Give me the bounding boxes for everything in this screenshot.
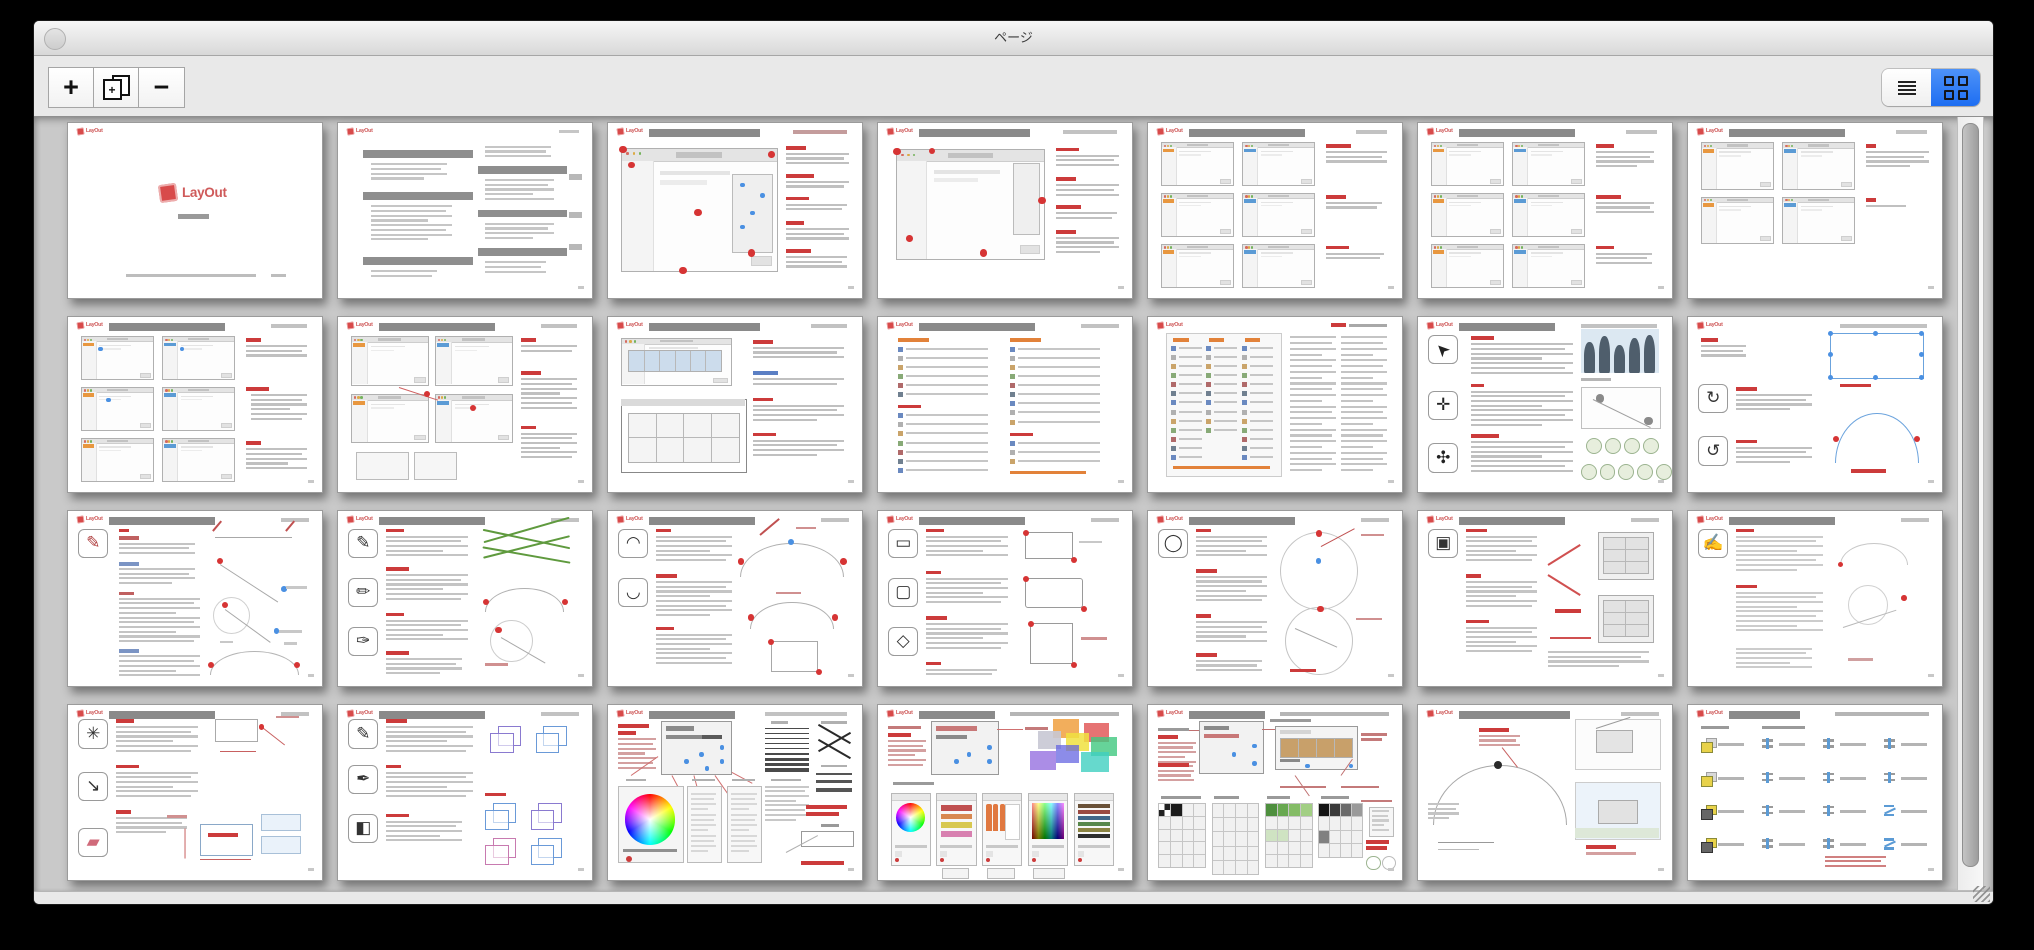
icon-label bbox=[1018, 451, 1099, 453]
thumb-bar bbox=[1658, 868, 1664, 871]
thumb-bar bbox=[271, 324, 307, 328]
thumb-screenshot bbox=[1431, 244, 1504, 288]
duplicate-page-button[interactable]: + bbox=[94, 68, 139, 107]
pattern-cell bbox=[1248, 832, 1259, 845]
close-button[interactable] bbox=[44, 28, 66, 50]
thumb-textline bbox=[1466, 581, 1537, 583]
icon-cell bbox=[1171, 373, 1176, 378]
grid-view-button[interactable] bbox=[1931, 69, 1980, 106]
tool-icon: ◠ bbox=[618, 529, 648, 559]
pattern-cell bbox=[1278, 830, 1289, 842]
page-thumbnail-7[interactable]: LayOut bbox=[1687, 122, 1943, 299]
thumb-textline bbox=[731, 819, 754, 821]
page-thumbnail-16[interactable]: LayOut✎✏✑ bbox=[337, 510, 593, 687]
thumb-bar bbox=[109, 517, 216, 526]
shot-highlight bbox=[1784, 149, 1795, 153]
thumb-bar bbox=[1658, 286, 1664, 289]
thumb-textline bbox=[1341, 388, 1383, 390]
thumb-textline bbox=[753, 440, 844, 442]
thumb-heading bbox=[1596, 246, 1614, 250]
pattern-cell bbox=[1183, 804, 1194, 816]
icon-cell bbox=[1242, 373, 1247, 378]
thumb-textlines bbox=[1428, 803, 1458, 822]
icon-label bbox=[1179, 365, 1202, 367]
thumb-textline bbox=[1158, 779, 1194, 781]
people-image bbox=[1581, 329, 1660, 373]
thumb-textline bbox=[1341, 463, 1387, 465]
thumb-textline bbox=[386, 545, 467, 547]
thumb-textline bbox=[116, 790, 197, 792]
shot-text bbox=[1531, 202, 1563, 203]
thumb-textlines bbox=[888, 740, 926, 768]
thumb-textline bbox=[1196, 640, 1267, 642]
thumb-textline bbox=[386, 731, 465, 733]
thumb-heading bbox=[786, 197, 809, 201]
tool-icon-glyph: ◯ bbox=[1164, 535, 1183, 552]
layout-logo-text: LayOut bbox=[1436, 129, 1453, 134]
pattern-cell bbox=[1278, 804, 1289, 816]
title-bar[interactable]: ページ bbox=[34, 21, 1993, 56]
align-axis bbox=[1766, 772, 1769, 783]
thumb-textline bbox=[371, 205, 452, 207]
thumb-dot bbox=[768, 639, 774, 645]
layout-logo: LayOut bbox=[1697, 710, 1723, 717]
list-icon bbox=[1898, 81, 1916, 95]
thumb-textline bbox=[731, 845, 756, 847]
shot-button bbox=[1760, 182, 1771, 187]
thumb-textlines bbox=[521, 378, 577, 411]
arc bbox=[1835, 413, 1918, 463]
thumb-bar bbox=[126, 274, 256, 277]
shot-highlight bbox=[1433, 149, 1444, 152]
thumb-textline bbox=[1056, 237, 1120, 239]
pattern-grid bbox=[1318, 803, 1363, 858]
thumb-bar bbox=[1438, 842, 1494, 844]
page-thumbnail-27[interactable]: LayOut bbox=[1417, 704, 1673, 881]
pattern-cell bbox=[1224, 804, 1235, 817]
thumb-bar bbox=[541, 712, 579, 716]
thumb-bar bbox=[816, 780, 852, 783]
thumb-textlines bbox=[1196, 660, 1262, 674]
entry-label bbox=[1779, 810, 1805, 813]
thumb-textline bbox=[1196, 631, 1267, 633]
thumb-textline bbox=[386, 579, 461, 581]
grid-cell bbox=[1626, 601, 1647, 612]
thumb-textline bbox=[691, 835, 716, 837]
tool-icon-glyph: ✎ bbox=[356, 726, 370, 743]
thumb-textline bbox=[386, 536, 467, 538]
thumb-textline bbox=[251, 399, 302, 401]
thumb-textline bbox=[1341, 382, 1387, 384]
shot-button bbox=[1571, 229, 1582, 234]
thumb-heading bbox=[753, 340, 773, 344]
thumb-dot bbox=[626, 856, 632, 862]
thumb-textline bbox=[116, 781, 197, 783]
delete-page-button[interactable]: − bbox=[139, 68, 184, 107]
page-thumbnail-15[interactable]: LayOut✎ bbox=[67, 510, 323, 687]
page-thumbnail-5[interactable]: LayOut bbox=[1147, 122, 1403, 299]
pattern-cell bbox=[1224, 818, 1235, 831]
shot-text bbox=[1179, 256, 1200, 257]
layout-logo-icon bbox=[616, 128, 624, 136]
thumb-textline bbox=[731, 808, 749, 810]
thumb-textline bbox=[521, 433, 577, 435]
thumb-dot bbox=[740, 225, 745, 230]
cube-front bbox=[531, 845, 554, 865]
page-thumbnail-24[interactable]: LayOut bbox=[607, 704, 863, 881]
thumb-textline bbox=[731, 803, 756, 805]
thumb-textline bbox=[1158, 746, 1193, 748]
cube-icon-front bbox=[1701, 776, 1713, 787]
thumb-textline bbox=[1596, 206, 1650, 208]
thumb-heading bbox=[801, 861, 844, 865]
grid-cell bbox=[629, 414, 656, 437]
page-thumbnail-22[interactable]: LayOut✳↘▰ bbox=[67, 704, 323, 881]
thumb-textline bbox=[1736, 461, 1789, 463]
icon-rows bbox=[1010, 347, 1101, 429]
thumb-box bbox=[356, 452, 409, 480]
thumb-dot bbox=[980, 249, 988, 257]
icon-cell bbox=[1171, 428, 1176, 433]
thumb-textline bbox=[1466, 650, 1531, 652]
thumb-textline bbox=[386, 550, 443, 552]
icon-label-entry bbox=[1701, 805, 1751, 820]
shot-title bbox=[462, 396, 485, 398]
thumb-textline bbox=[119, 568, 195, 570]
thumb-textlines bbox=[656, 634, 732, 667]
thumb-textline bbox=[116, 795, 191, 797]
icon-cell bbox=[1171, 400, 1176, 405]
layout-logo-icon bbox=[616, 710, 624, 718]
page-thumbnail-6[interactable]: LayOut bbox=[1417, 122, 1673, 299]
shot-button bbox=[221, 474, 232, 479]
thumb-dot bbox=[699, 752, 704, 757]
icon-rows bbox=[1242, 346, 1275, 464]
tool-icon-glyph: ▭ bbox=[895, 535, 911, 552]
thumb-bar bbox=[1118, 286, 1124, 289]
pattern-cell bbox=[1289, 830, 1300, 842]
thumb-line bbox=[286, 521, 296, 532]
shot-highlight bbox=[1163, 250, 1174, 253]
page-thumbnail-21[interactable]: LayOut✍ bbox=[1687, 510, 1943, 687]
pattern-cell bbox=[1352, 844, 1362, 856]
shot-text bbox=[1449, 151, 1481, 152]
page-thumbnail-3[interactable]: LayOut bbox=[607, 122, 863, 299]
page-thumbnail-2[interactable]: LayOut bbox=[337, 122, 593, 299]
thumb-heading bbox=[1866, 144, 1876, 148]
thumb-textline bbox=[1736, 648, 1812, 650]
thumb-heading bbox=[1196, 614, 1211, 618]
add-page-button[interactable]: + bbox=[49, 68, 94, 107]
thumb-textline bbox=[1290, 446, 1322, 448]
thumb-bar bbox=[1189, 711, 1265, 720]
thumb-textline bbox=[1196, 580, 1261, 582]
pattern-cell bbox=[1266, 842, 1277, 854]
shot-sidebar bbox=[897, 161, 927, 259]
page-thumbnail-1[interactable]: LayOutLayOut bbox=[67, 122, 323, 299]
thumb-textline bbox=[691, 845, 716, 847]
thumb-textline bbox=[1736, 625, 1796, 627]
thumb-dot bbox=[628, 162, 635, 169]
page-thumbnail-9[interactable]: LayOut bbox=[337, 316, 593, 493]
thumb-bar bbox=[649, 129, 761, 138]
thumb-textline bbox=[1466, 605, 1531, 607]
resize-grip[interactable] bbox=[1973, 886, 1990, 902]
thumb-textline bbox=[1466, 586, 1531, 588]
page-thumbnail-18[interactable]: LayOut▭▢◇ bbox=[877, 510, 1133, 687]
thumb-line bbox=[184, 828, 185, 858]
tool-icon: ▭ bbox=[888, 529, 918, 559]
pattern-cell bbox=[1266, 855, 1277, 867]
page-thumbnail-14[interactable]: LayOut↻↺ bbox=[1687, 316, 1943, 493]
thumb-heading bbox=[386, 765, 401, 769]
thumb-textline bbox=[386, 790, 472, 792]
thumb-textline bbox=[1471, 372, 1573, 374]
page-thumbnail-20[interactable]: LayOut▣ bbox=[1417, 510, 1673, 687]
thumb-textline bbox=[1736, 606, 1796, 608]
thumb-textline bbox=[753, 444, 837, 446]
thumb-textline bbox=[521, 402, 572, 404]
thumb-textline bbox=[246, 345, 307, 347]
thumb-bar bbox=[1701, 726, 1729, 729]
page-thumbnail-23[interactable]: LayOut✎✒◧ bbox=[337, 704, 593, 881]
thumb-dot bbox=[1252, 761, 1257, 766]
icon-cell bbox=[898, 392, 903, 397]
scrollbar-thumb[interactable] bbox=[1962, 123, 1979, 867]
pattern-cell bbox=[1266, 817, 1277, 829]
thumb-heading bbox=[386, 651, 409, 655]
thumb-bar bbox=[1361, 534, 1384, 537]
layout-logo-icon bbox=[1156, 710, 1164, 718]
thumb-bar bbox=[569, 174, 582, 180]
layout-logo: LayOut bbox=[1157, 322, 1183, 329]
icon-cell bbox=[1206, 419, 1211, 424]
page-thumbnail-8[interactable]: LayOut bbox=[67, 316, 323, 493]
page-thumbnail-19[interactable]: LayOut◯ bbox=[1147, 510, 1403, 687]
icon-label bbox=[906, 432, 987, 434]
thumb-dot bbox=[906, 235, 913, 242]
thumb-textlines bbox=[1466, 627, 1537, 655]
thumb-textline bbox=[116, 750, 191, 752]
tool-icon: ◯ bbox=[1158, 529, 1188, 559]
thumb-textline bbox=[656, 554, 732, 556]
layout-logo: LayOut bbox=[347, 516, 373, 523]
thumb-textline bbox=[1736, 403, 1812, 405]
icon-label bbox=[1018, 460, 1099, 462]
icon-cell bbox=[1206, 400, 1211, 405]
icon-label bbox=[1179, 411, 1202, 413]
thumb-bar bbox=[776, 592, 801, 595]
page-thumbnail-11[interactable]: LayOut bbox=[877, 316, 1133, 493]
pattern-cell bbox=[1194, 855, 1205, 867]
color-picker-panel bbox=[891, 793, 931, 867]
layout-logo-icon bbox=[1696, 516, 1704, 524]
arc bbox=[740, 543, 844, 577]
thumb-textline bbox=[521, 383, 572, 385]
shot-title bbox=[378, 338, 401, 340]
thumb-textlines bbox=[1326, 151, 1387, 165]
thumb-textline bbox=[1196, 536, 1267, 538]
pattern-cell bbox=[1159, 804, 1170, 816]
thumb-heading bbox=[1290, 669, 1315, 673]
thumb-textlines bbox=[1596, 151, 1654, 170]
circle bbox=[1600, 464, 1616, 480]
thumb-textline bbox=[1471, 460, 1573, 462]
page-thumbnail-17[interactable]: LayOut◠◡ bbox=[607, 510, 863, 687]
thumb-bar bbox=[1118, 480, 1124, 483]
thumb-textline bbox=[753, 351, 837, 353]
thumb-textline bbox=[251, 403, 307, 405]
thumb-textline bbox=[1466, 536, 1537, 538]
thumb-heading bbox=[1366, 846, 1386, 850]
thumb-heading bbox=[1331, 323, 1346, 327]
thumb-screenshot bbox=[1161, 244, 1234, 288]
thumb-dot bbox=[1901, 595, 1907, 601]
thumb-heading bbox=[1056, 177, 1076, 181]
layout-logo-text: LayOut bbox=[1706, 517, 1723, 522]
thumb-textlines bbox=[1825, 856, 1886, 870]
thumb-textline bbox=[386, 663, 456, 665]
thumb-screenshot bbox=[1512, 142, 1585, 186]
thumb-screenshot bbox=[1512, 244, 1585, 288]
thumb-textlines bbox=[1866, 151, 1930, 170]
list-view-button[interactable] bbox=[1882, 69, 1931, 106]
thumb-textline bbox=[1196, 669, 1262, 671]
thumb-textline bbox=[1736, 620, 1822, 622]
thumb-textline bbox=[1428, 808, 1456, 810]
pattern-cell bbox=[1289, 855, 1300, 867]
thumb-textline bbox=[1736, 569, 1796, 571]
thumb-textline bbox=[1471, 455, 1542, 457]
thumb-bar bbox=[1835, 712, 1929, 716]
thumb-bar bbox=[893, 782, 934, 785]
shot-text bbox=[1179, 205, 1200, 206]
page-thumbnail-10[interactable]: LayOut bbox=[607, 316, 863, 493]
thumb-textline bbox=[731, 798, 754, 800]
page-thumbnail-12[interactable]: LayOut bbox=[1147, 316, 1403, 493]
thumb-bar bbox=[1341, 786, 1379, 789]
pattern-cell bbox=[1341, 831, 1351, 843]
thumb-bar bbox=[649, 323, 761, 332]
pattern-cell bbox=[1224, 861, 1235, 874]
thumb-bar bbox=[626, 779, 646, 782]
thumb-bar bbox=[279, 630, 302, 633]
tool-icon: ✎ bbox=[78, 529, 108, 559]
icon-cell bbox=[1242, 391, 1247, 396]
page-thumbnail-28[interactable]: LayOut bbox=[1687, 704, 1943, 881]
duplicate-page-icon: + bbox=[103, 75, 130, 100]
shot-traffic-dot bbox=[626, 152, 629, 155]
thumb-textline bbox=[786, 185, 844, 187]
grid-cell bbox=[1626, 538, 1647, 549]
grid-cell bbox=[676, 351, 690, 370]
icon-label-entry bbox=[1823, 738, 1873, 753]
thumb-heading bbox=[386, 719, 406, 723]
thumb-textline bbox=[521, 388, 577, 390]
thumb-textline bbox=[691, 850, 709, 852]
icon-cell bbox=[1171, 419, 1176, 424]
thumb-bar bbox=[1214, 796, 1239, 799]
page-thumbnail-4[interactable]: LayOut bbox=[877, 122, 1133, 299]
thumb-textlines bbox=[1196, 576, 1267, 604]
tool-icon-glyph: ▰ bbox=[87, 834, 100, 851]
thumb-textline bbox=[1056, 184, 1120, 186]
thumb-bar bbox=[848, 480, 854, 483]
shot-highlight bbox=[353, 401, 365, 405]
thumb-ring bbox=[1366, 856, 1381, 871]
thumb-textlines bbox=[656, 581, 732, 619]
thumb-textline bbox=[1158, 770, 1194, 772]
align-axis bbox=[1827, 805, 1830, 816]
layout-logo-icon bbox=[616, 322, 624, 330]
pattern-grid bbox=[1212, 803, 1260, 875]
weight-line bbox=[765, 753, 808, 755]
shot-sidebar bbox=[1162, 198, 1177, 236]
thumb-textline bbox=[888, 759, 926, 761]
page-thumbnail-13[interactable]: LayOut➤✛✣ bbox=[1417, 316, 1673, 493]
thumb-textline bbox=[1736, 451, 1806, 453]
thumb-textline bbox=[1736, 456, 1812, 458]
icon-cell bbox=[1010, 347, 1015, 352]
picker-crayon bbox=[993, 804, 998, 831]
shot-title bbox=[1538, 144, 1559, 146]
page-thumbnail-26[interactable]: LayOut bbox=[1147, 704, 1403, 881]
page-thumbnail-25[interactable]: LayOut bbox=[877, 704, 1133, 881]
layout-logo-icon bbox=[886, 322, 894, 330]
thumb-textline bbox=[1736, 540, 1815, 542]
shot-traffic-dot bbox=[360, 339, 363, 342]
arc bbox=[1840, 543, 1908, 565]
thumb-textlines bbox=[1326, 253, 1384, 262]
shot-title bbox=[188, 338, 209, 340]
thumb-heading bbox=[1196, 653, 1216, 657]
thumb-textline bbox=[1736, 592, 1822, 594]
thumb-line bbox=[200, 859, 251, 860]
thumb-bar bbox=[569, 212, 582, 218]
thumb-textline bbox=[485, 198, 554, 200]
shot-button bbox=[713, 378, 728, 383]
thumb-textline bbox=[731, 840, 754, 842]
pattern-cell bbox=[1171, 830, 1182, 842]
thumb-textline bbox=[1326, 257, 1380, 259]
thumb-heading bbox=[521, 371, 541, 375]
shot-button bbox=[1490, 179, 1501, 184]
entry-label bbox=[1901, 743, 1927, 746]
shot-traffic-dot bbox=[907, 154, 910, 157]
arc bbox=[750, 602, 833, 629]
picker-active-dot bbox=[986, 858, 990, 862]
icon-cell bbox=[1242, 400, 1247, 405]
icon-cell bbox=[1242, 428, 1247, 433]
pattern-cell bbox=[1183, 842, 1194, 854]
thumb-textline bbox=[521, 378, 577, 380]
thumb-ring bbox=[1285, 607, 1353, 675]
shot-button bbox=[1841, 182, 1852, 187]
picker-bar bbox=[940, 845, 972, 848]
scrollbar-track[interactable] bbox=[1957, 117, 1984, 890]
thumb-textline bbox=[656, 634, 732, 636]
thumb-textline bbox=[1158, 742, 1196, 744]
thumb-textlines bbox=[1736, 592, 1822, 635]
thumb-textline bbox=[371, 234, 452, 236]
picker-titlebar bbox=[892, 794, 930, 801]
thumb-textline bbox=[691, 824, 716, 826]
grid-cell bbox=[629, 351, 643, 370]
layout-logo: LayOut bbox=[887, 710, 913, 717]
shot-highlight bbox=[1784, 203, 1795, 207]
thumb-textline bbox=[731, 850, 749, 852]
thumb-textline bbox=[1596, 253, 1652, 255]
